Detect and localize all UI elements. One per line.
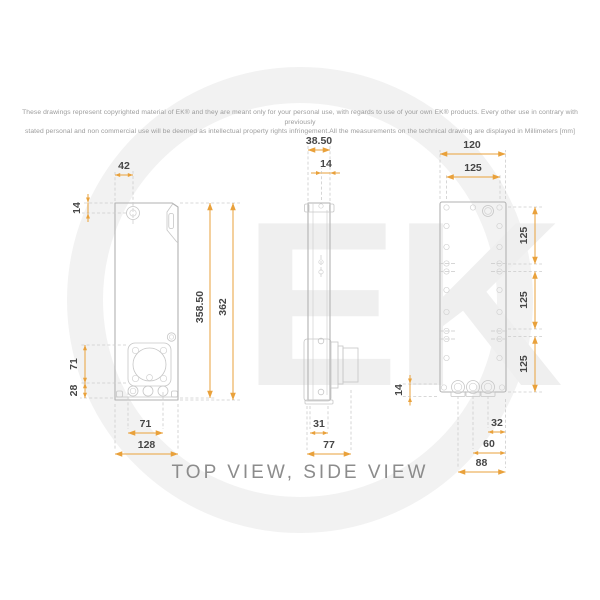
dim-label: 28	[68, 385, 80, 397]
dim-label: 71	[68, 358, 80, 370]
drawing-svg: EK	[0, 0, 600, 600]
dim-label: 125	[464, 162, 482, 174]
dim-inner-length: 358.50	[180, 203, 240, 398]
top-view-drawing	[115, 202, 178, 400]
technical-drawing-page: EK	[0, 0, 600, 600]
view-title: TOP VIEW, SIDE VIEW	[0, 462, 600, 484]
dim-label: 358.50	[194, 291, 206, 323]
dim-label: 125	[518, 227, 530, 245]
disclaimer-line-1: These drawings represent copyrighted mat…	[20, 108, 580, 127]
dim-label: 14	[320, 158, 332, 170]
copyright-disclaimer: These drawings represent copyrighted mat…	[20, 108, 580, 137]
dim-label: 120	[463, 139, 481, 151]
dim-label: 125	[518, 291, 530, 309]
dim-label: 31	[313, 418, 325, 430]
dim-label: 38.50	[306, 135, 332, 147]
dim-label: 14	[393, 384, 405, 396]
dim-label: 14	[71, 202, 83, 214]
bottom-ports-top-view	[128, 386, 168, 396]
disclaimer-line-2: stated personal and non commercial use w…	[20, 127, 580, 137]
dim-label: 42	[118, 160, 130, 172]
dim-label: 362	[217, 298, 229, 316]
dim-label: 77	[323, 439, 335, 451]
dim-label: 32	[491, 417, 503, 429]
dim-label: 125	[518, 355, 530, 373]
dim-label: 60	[483, 438, 495, 450]
pump-mount	[128, 343, 171, 386]
dim-label: 128	[138, 439, 156, 451]
dim-label: 71	[140, 418, 152, 430]
